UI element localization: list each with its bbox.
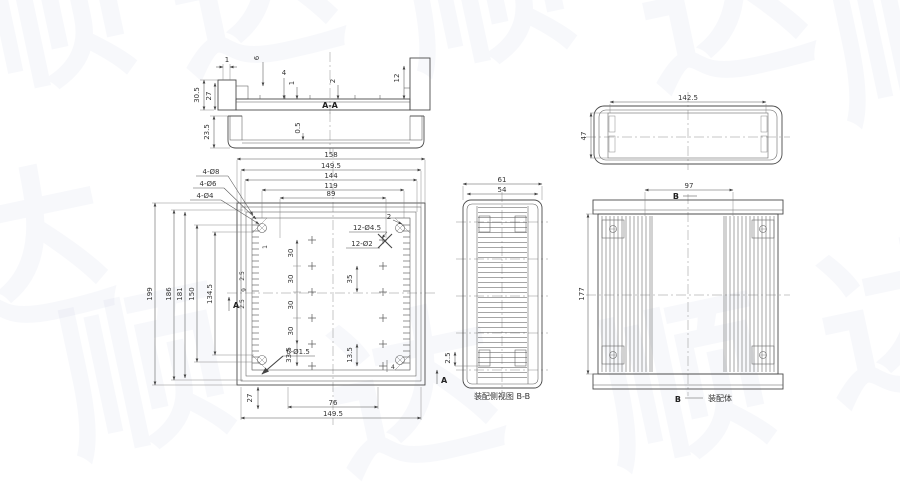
dim-aa-web-b: 1 [288, 81, 296, 85]
cover-view: 142.5 47 [580, 92, 790, 170]
dim-assembly-177: 177 [578, 287, 586, 300]
side-view: 61 54 2.5 装配侧视图 B-B [444, 176, 548, 401]
dim-aa-web-a: 4 [282, 69, 287, 77]
dim-front-119: 119 [324, 182, 337, 190]
dim-pitch-30: 30 [287, 327, 295, 336]
dim-assembly-97: 97 [685, 182, 694, 190]
dim-pitch-30: 30 [287, 275, 295, 284]
section-marker-a-right: A [441, 376, 448, 385]
drawing-stage: 顺 达 顺 达 顺 达 顺 达 顺 达 [0, 0, 900, 500]
dim-aa-total-height: 30.5 [193, 87, 201, 103]
dim-aa-web-c: 2 [329, 79, 337, 83]
label-corner-holes-o8: 4-Ø8 [203, 168, 220, 176]
dim-aa-step: 6 [253, 55, 261, 60]
dim-front-186: 186 [165, 287, 173, 301]
lid-section-view: 23.5 0.5 [203, 112, 424, 153]
label-corner-holes-o4: 4-Ø4 [197, 192, 214, 200]
dim-side-2-5: 2.5 [444, 352, 452, 363]
dim-front-149-5-bottom: 149.5 [323, 410, 343, 418]
dim-front-158: 158 [324, 151, 337, 159]
dim-side-54: 54 [498, 186, 507, 194]
dim-front-4: 4 [391, 364, 395, 371]
label-bottom-holes: 6-Ø1.5 [286, 348, 310, 356]
dim-lid-height: 23.5 [203, 124, 211, 140]
dim-front-27: 27 [246, 394, 254, 403]
dim-front-2-5b: 2.5 [239, 299, 246, 309]
dim-front-134-5: 134.5 [206, 284, 214, 304]
dim-front-199: 199 [146, 287, 154, 300]
dim-front-2-5a: 2.5 [239, 271, 246, 281]
label-corner-holes-o6: 4-Ø6 [200, 180, 217, 188]
dim-front-144: 144 [324, 172, 338, 180]
dim-front-13-5: 13.5 [346, 347, 354, 363]
section-aa-view: 30.5 27 1 6 4 1 2 12 A-A [193, 52, 430, 114]
label-grid-holes-o45: 12-Ø4.5 [353, 224, 381, 232]
dim-lid-web: 0.5 [294, 122, 302, 133]
assembly-view: 97 B 177 B 装配体 [578, 182, 790, 404]
section-marker-a-left: A [233, 301, 240, 310]
dim-aa-right-depth: 12 [393, 74, 401, 83]
label-grid-holes-o2: 12-Ø2 [351, 240, 372, 248]
dim-pitch-30: 30 [287, 301, 295, 310]
dim-front-150: 150 [188, 287, 196, 300]
front-view: 158 149.5 144 119 89 199 186 181 150 134… [146, 148, 448, 425]
dim-aa-inner-height: 27 [205, 92, 213, 101]
dim-front-35: 35 [346, 275, 354, 284]
dim-front-89: 89 [327, 190, 336, 198]
engineering-drawing: 30.5 27 1 6 4 1 2 12 A-A [0, 0, 900, 500]
dim-front-9: 9 [241, 288, 248, 292]
section-marker-b-bottom: B [675, 395, 681, 404]
dim-front-149-5: 149.5 [321, 162, 341, 170]
dim-front-181: 181 [176, 287, 184, 300]
dim-aa-lip: 1 [225, 56, 229, 64]
dim-front-1: 1 [262, 245, 269, 249]
dim-front-76: 76 [329, 399, 338, 407]
dim-cover-47: 47 [580, 132, 588, 141]
dim-side-61: 61 [498, 176, 507, 184]
dim-front-2: 2 [387, 213, 391, 221]
side-view-caption: 装配侧视图 B-B [474, 391, 530, 401]
dim-cover-142-5: 142.5 [678, 94, 698, 102]
assembly-caption: 装配体 [708, 393, 732, 403]
section-aa-label: A-A [322, 101, 339, 110]
corner-boss [258, 224, 405, 365]
section-marker-b-top: B [673, 192, 679, 201]
dim-pitch-30: 30 [287, 249, 295, 258]
